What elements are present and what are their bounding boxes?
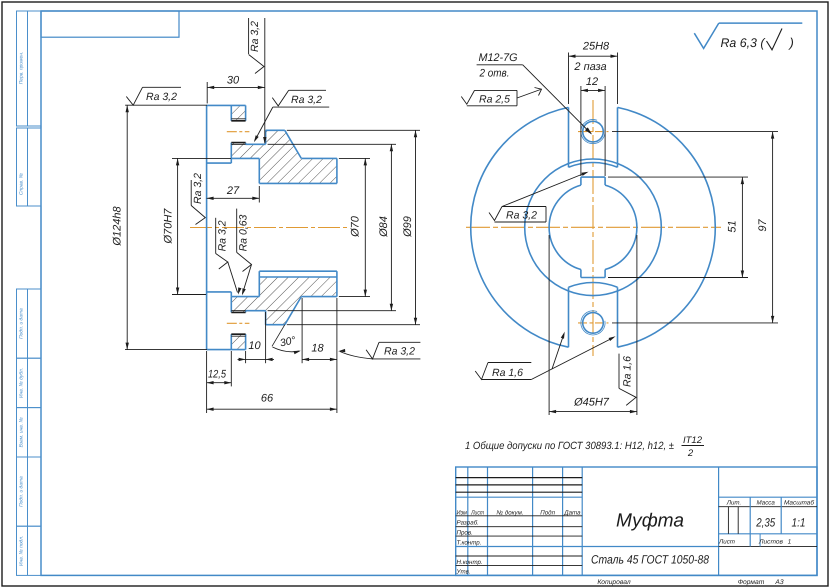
svg-text:Ø124h8: Ø124h8 xyxy=(112,206,124,247)
svg-text:Изм: Изм xyxy=(456,510,467,517)
svg-text:Разраб.: Разраб. xyxy=(457,520,479,527)
svg-text:Ra 1,6: Ra 1,6 xyxy=(622,356,634,387)
svg-text:№ докум.: № докум. xyxy=(496,510,523,517)
svg-text:Перв. примен.: Перв. примен. xyxy=(19,52,25,85)
svg-text:51: 51 xyxy=(727,220,739,232)
svg-text:Лист: Лист xyxy=(470,510,484,517)
svg-text:Ø70H7: Ø70H7 xyxy=(163,208,175,245)
svg-text:Сталь 45 ГОСТ 1050-88: Сталь 45 ГОСТ 1050-88 xyxy=(591,553,709,567)
svg-text:Подп. и дата: Подп. и дата xyxy=(19,308,25,339)
svg-text:Ø45H7: Ø45H7 xyxy=(573,396,610,408)
svg-text:Масштаб: Масштаб xyxy=(784,500,815,507)
svg-text:Ra 2,5: Ra 2,5 xyxy=(479,94,510,106)
svg-text:Инв. № подл.: Инв. № подл. xyxy=(19,536,25,566)
svg-text:2 отв.: 2 отв. xyxy=(479,68,510,80)
svg-text:Ra 3,2: Ra 3,2 xyxy=(217,220,229,251)
svg-text:Формат: Формат xyxy=(738,579,765,586)
svg-text:IT12: IT12 xyxy=(683,435,703,446)
svg-text:Лит.: Лит. xyxy=(726,500,742,507)
svg-text:1:1: 1:1 xyxy=(792,516,806,530)
svg-text:Ø70: Ø70 xyxy=(350,215,362,238)
svg-text:Подп. и дата: Подп. и дата xyxy=(19,476,25,507)
svg-text:Пров.: Пров. xyxy=(457,530,473,537)
svg-text:2: 2 xyxy=(687,448,694,459)
svg-text:12,5: 12,5 xyxy=(208,369,227,381)
svg-text:Подп: Подп xyxy=(540,510,555,517)
svg-text:А3: А3 xyxy=(774,579,783,586)
svg-text:Ra 0,63: Ra 0,63 xyxy=(238,214,250,251)
svg-text:2 паза: 2 паза xyxy=(573,61,606,73)
svg-text:18: 18 xyxy=(311,343,324,355)
svg-text:Муфта: Муфта xyxy=(616,511,684,532)
svg-text:Масса: Масса xyxy=(757,500,776,507)
svg-text:Ra 3,2: Ra 3,2 xyxy=(146,91,177,103)
svg-text:Ra 6,3 (: Ra 6,3 ( xyxy=(721,36,767,50)
svg-text:Дата: Дата xyxy=(563,510,581,517)
svg-text:1 Общие допуски по ГОСТ 30893.: 1 Общие допуски по ГОСТ 30893.1: Н12, h1… xyxy=(465,440,674,452)
svg-text:Ra 1,6: Ra 1,6 xyxy=(492,367,523,379)
svg-text:Т.контр.: Т.контр. xyxy=(457,540,482,547)
svg-text:Ra 3,2: Ra 3,2 xyxy=(291,94,322,106)
svg-text:30: 30 xyxy=(227,75,240,87)
svg-text:Ra 3,2: Ra 3,2 xyxy=(249,21,261,52)
svg-text:Копировал: Копировал xyxy=(597,579,630,586)
svg-text:27: 27 xyxy=(226,185,240,197)
svg-text:M12-7G: M12-7G xyxy=(479,52,518,64)
svg-text:Ra 3,2: Ra 3,2 xyxy=(506,210,537,222)
svg-text:Ø84: Ø84 xyxy=(378,216,390,238)
svg-text:Лист: Лист xyxy=(718,539,735,546)
svg-text:Ø99: Ø99 xyxy=(402,216,414,238)
svg-text:2,35: 2,35 xyxy=(755,516,775,530)
svg-text:Листов: Листов xyxy=(758,539,784,546)
svg-text:1: 1 xyxy=(788,539,791,546)
svg-text:97: 97 xyxy=(757,219,769,232)
svg-text:Ra 3,2: Ra 3,2 xyxy=(192,173,204,204)
svg-text:Инв. № дубл.: Инв. № дубл. xyxy=(19,368,25,398)
svg-text:Н.контр.: Н.контр. xyxy=(457,559,483,566)
svg-text:25H8: 25H8 xyxy=(582,41,610,53)
svg-text:Утв.: Утв. xyxy=(456,569,471,576)
svg-text:12: 12 xyxy=(586,76,598,88)
svg-text:66: 66 xyxy=(261,393,274,405)
svg-text:Справ. №: Справ. № xyxy=(19,172,25,195)
svg-text:10: 10 xyxy=(248,340,261,352)
svg-text:Взам. инв. №: Взам. инв. № xyxy=(19,416,25,447)
svg-text:Ra 3,2: Ra 3,2 xyxy=(384,346,415,358)
